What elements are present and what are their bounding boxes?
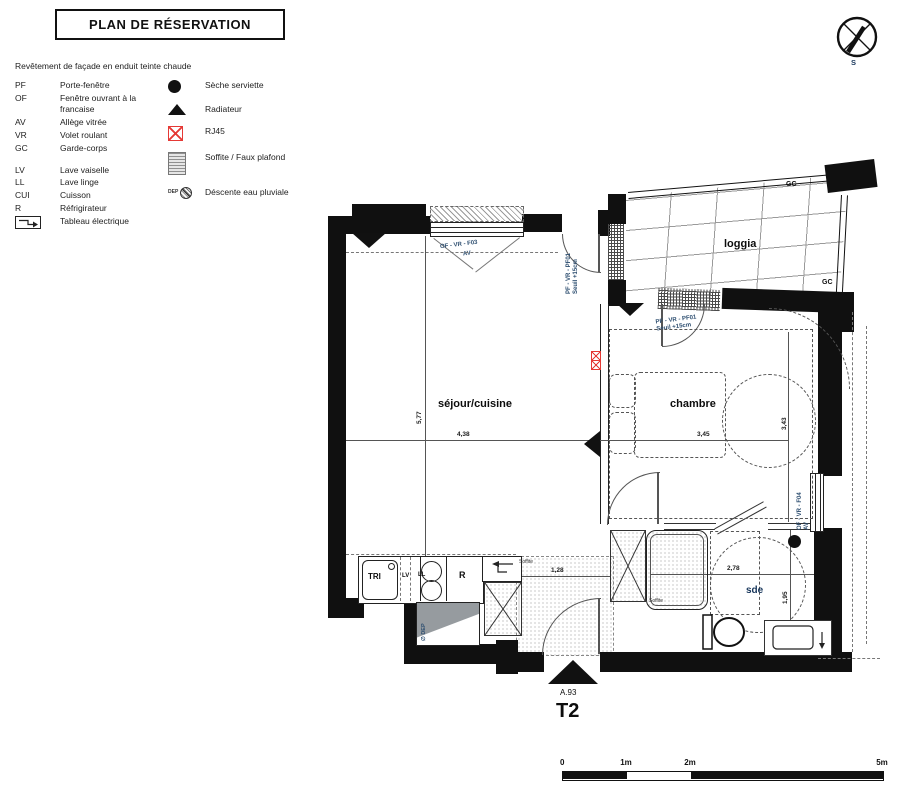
room-label-loggia: loggia: [724, 238, 756, 250]
dep-label: ∅ DEP: [421, 623, 428, 641]
counter-divider: [446, 557, 447, 601]
door-label: PF - VR - PF01 Seuil +15cm: [566, 253, 580, 294]
radiateur-icon: [352, 233, 386, 248]
entrance-door-leaf: [598, 598, 600, 654]
entrance-arrow-icon: [548, 660, 598, 684]
counter-divider: [410, 557, 411, 601]
sink-tap-icon: [388, 563, 395, 570]
tableau-electrique: [482, 556, 522, 582]
gc-label: GC: [786, 181, 797, 188]
dim-label: 5,77: [416, 411, 423, 424]
washbasin: [764, 620, 832, 661]
hob-burner-icon: [421, 580, 442, 601]
room-label-sde: sde: [746, 585, 763, 596]
seche-serviette-icon: [788, 535, 801, 548]
partition-wall: [664, 523, 716, 530]
scale-bar-segment: [691, 771, 883, 779]
wall-segment: [404, 600, 416, 646]
wall-segment: [522, 214, 562, 232]
toilet: [702, 610, 748, 659]
scale-tick: 1m: [620, 758, 632, 767]
window-swing-line: [475, 237, 520, 272]
sde-dashed-zone: [710, 531, 760, 615]
gc-label: GC: [822, 279, 833, 286]
dim-line: [425, 236, 426, 602]
dim-label: 3,43: [781, 417, 788, 430]
dim-line: [518, 576, 610, 577]
soffite-dashed-line: [346, 554, 516, 555]
duct-shaft: [610, 530, 646, 602]
unit-lot-label: A.93: [560, 688, 576, 697]
wall-segment: [352, 204, 426, 216]
soffite-note: Soffite: [649, 598, 663, 604]
wall-segment: [608, 194, 626, 224]
wall-segment: [328, 216, 346, 618]
dim-label: 2,78: [727, 565, 740, 572]
room-label-chambre: chambre: [670, 398, 716, 410]
exterior-dashed-line: [866, 326, 867, 644]
dim-line: [788, 332, 789, 522]
plan-sheet: PLAN DE RÉSERVATION Revêtement de façade…: [0, 0, 900, 800]
kitchen-label-ll: LL: [418, 572, 425, 578]
radiateur-icon: [584, 431, 600, 457]
floor-plan: OF - VR - F03 AV PF - VR - PF01 Seuil +1…: [0, 0, 900, 800]
scale-tick: 2m: [684, 758, 696, 767]
counter-divider: [400, 557, 401, 601]
kitchen-label-fridge: R: [459, 570, 466, 580]
dim-label: 3,45: [697, 431, 710, 438]
window-glyph: [430, 222, 524, 237]
scale-tick: 0: [560, 758, 564, 767]
window-label: OF - VR - F03: [440, 240, 478, 252]
door-leaf: [598, 234, 600, 272]
unit-type-label: T2: [556, 700, 579, 723]
window-shutter-band: [608, 224, 624, 280]
soffite-note: Soffite: [519, 559, 533, 565]
wall-segment: [824, 159, 877, 193]
dim-label: 1,95: [782, 591, 789, 604]
scale-bar: 0 1m 2m 5m: [562, 758, 884, 784]
nightstand-outline: [609, 412, 636, 454]
bed-outline: [634, 372, 726, 458]
rj45-icon: [591, 360, 601, 370]
dim-label: 4,38: [457, 431, 470, 438]
radiateur-icon: [616, 303, 644, 316]
dim-label: 1,28: [551, 567, 564, 574]
exterior-dashed-line: [852, 312, 853, 652]
kitchen-label-lv: LV: [402, 573, 409, 579]
kitchen-label-tri: TRI: [368, 572, 381, 581]
wall-segment: [404, 644, 504, 664]
soffite-dashed-line: [346, 252, 558, 253]
nightstand-outline: [609, 374, 636, 408]
window-coffre: [430, 206, 524, 222]
wall-segment: [346, 216, 430, 234]
partition-wall: [600, 304, 609, 524]
scale-bar-segment: [563, 771, 627, 779]
dim-line: [346, 440, 788, 441]
duct-shaft: [484, 582, 522, 636]
room-label-sejour: séjour/cuisine: [438, 398, 512, 410]
wall-segment: [516, 652, 544, 672]
shower-inner: [650, 534, 704, 606]
scale-tick: 5m: [876, 758, 888, 767]
